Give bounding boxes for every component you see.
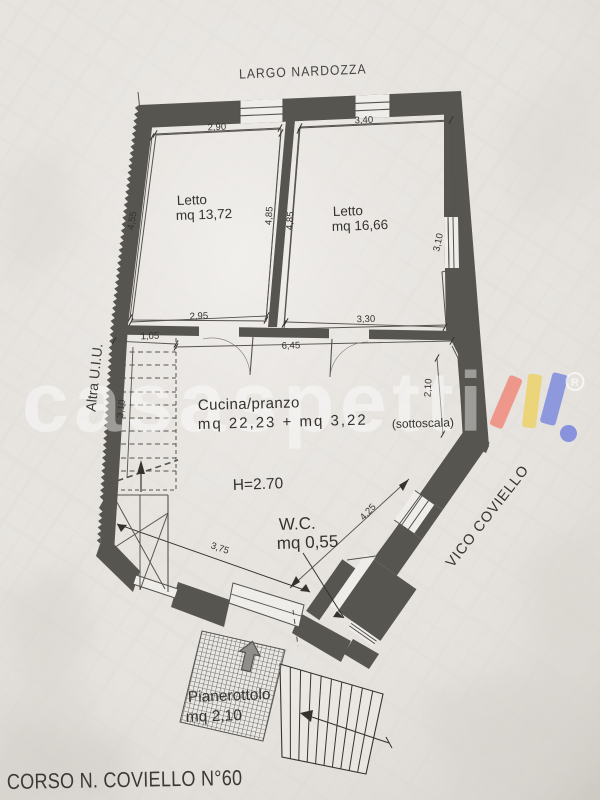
svg-text:3,10: 3,10 — [115, 399, 128, 419]
svg-text:Cucina/pranzo: Cucina/pranzo — [198, 394, 300, 414]
svg-text:3,30: 3,30 — [357, 314, 376, 325]
svg-text:1,05: 1,05 — [140, 331, 159, 343]
svg-text:Pianerottolo: Pianerottolo — [188, 686, 271, 706]
svg-text:CORSO N. COVIELLO N°60: CORSO N. COVIELLO N°60 — [7, 766, 243, 794]
svg-text:mq 13,72: mq 13,72 — [176, 206, 233, 223]
svg-text:mq 2,10: mq 2,10 — [186, 707, 243, 726]
svg-text:2,90: 2,90 — [207, 122, 226, 134]
svg-text:H=2.70: H=2.70 — [233, 475, 284, 494]
svg-text:R: R — [571, 377, 579, 389]
svg-text:3,40: 3,40 — [354, 115, 373, 127]
svg-text:Letto: Letto — [333, 203, 364, 219]
svg-text:mq 16,66: mq 16,66 — [332, 217, 389, 234]
svg-text:(sottoscala): (sottoscala) — [392, 415, 454, 431]
svg-text:W.C.: W.C. — [278, 514, 315, 534]
svg-text:6,45: 6,45 — [282, 340, 301, 351]
svg-text:2,95: 2,95 — [189, 311, 208, 323]
svg-text:Letto: Letto — [177, 192, 208, 208]
svg-text:mq 0,55: mq 0,55 — [276, 532, 338, 553]
svg-text:4,85: 4,85 — [284, 211, 296, 230]
svg-text:2,10: 2,10 — [423, 378, 435, 397]
svg-text:4,85: 4,85 — [263, 206, 275, 225]
